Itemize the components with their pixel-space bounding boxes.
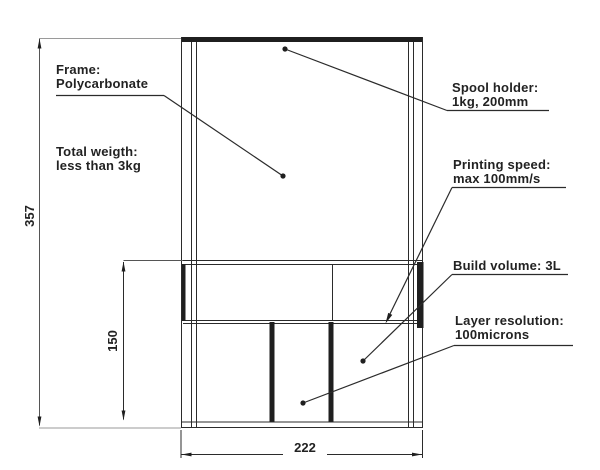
layer-resolution-line2: 100microns xyxy=(455,328,564,342)
arrowhead-up xyxy=(122,262,126,272)
arrowhead-right xyxy=(412,453,422,457)
total-weight-line1: Total weigth: xyxy=(56,145,141,159)
printing-speed-note: Printing speed: max 100mm/s xyxy=(453,158,551,186)
lower-right-bar xyxy=(329,322,334,422)
technical-drawing-canvas: Frame: Polycarbonate Total weigth: less … xyxy=(0,0,600,470)
frame-note-line2: Polycarbonate xyxy=(56,77,148,91)
frame-note: Frame: Polycarbonate xyxy=(56,63,148,91)
arrowhead-down xyxy=(38,417,42,427)
lower-left-bar xyxy=(270,322,275,422)
dimension-label-overall-width: 222 xyxy=(283,441,327,455)
dimension-label-lower-height: 150 xyxy=(106,321,120,361)
dimension-label-overall-height: 357 xyxy=(23,196,37,236)
spool-holder-line2: 1kg, 200mm xyxy=(452,95,538,109)
leader-dot xyxy=(300,400,305,405)
arrowhead-down xyxy=(122,411,126,421)
dimension-150 xyxy=(122,261,183,421)
arrowhead-up xyxy=(38,39,42,49)
leader-dot xyxy=(280,173,285,178)
leader-dot xyxy=(282,46,287,51)
layer-resolution-leader xyxy=(303,346,454,404)
total-weight-line2: less than 3kg xyxy=(56,159,141,173)
leader-dot xyxy=(360,358,365,363)
layer-resolution-line1: Layer resolution: xyxy=(455,314,564,328)
arrowhead-leader xyxy=(386,313,393,324)
spool-holder-note: Spool holder: 1kg, 200mm xyxy=(452,81,538,109)
bed-box-right-post xyxy=(417,262,424,328)
build-volume-line1: Build volume: 3L xyxy=(453,259,561,273)
printing-speed-line2: max 100mm/s xyxy=(453,172,551,186)
frame-note-line1: Frame: xyxy=(56,63,148,77)
total-weight-note: Total weigth: less than 3kg xyxy=(56,145,141,173)
frame-top-bar xyxy=(181,37,423,42)
layer-resolution-note: Layer resolution: 100microns xyxy=(455,314,564,342)
build-volume-note: Build volume: 3L xyxy=(453,259,561,273)
printing-speed-line1: Printing speed: xyxy=(453,158,551,172)
bed-box-left-post xyxy=(182,264,186,321)
dimension-357 xyxy=(38,39,181,429)
printer-frame xyxy=(181,37,424,428)
spool-holder-line1: Spool holder: xyxy=(452,81,538,95)
build-volume-leader xyxy=(363,275,452,362)
arrowhead-left xyxy=(182,453,192,457)
